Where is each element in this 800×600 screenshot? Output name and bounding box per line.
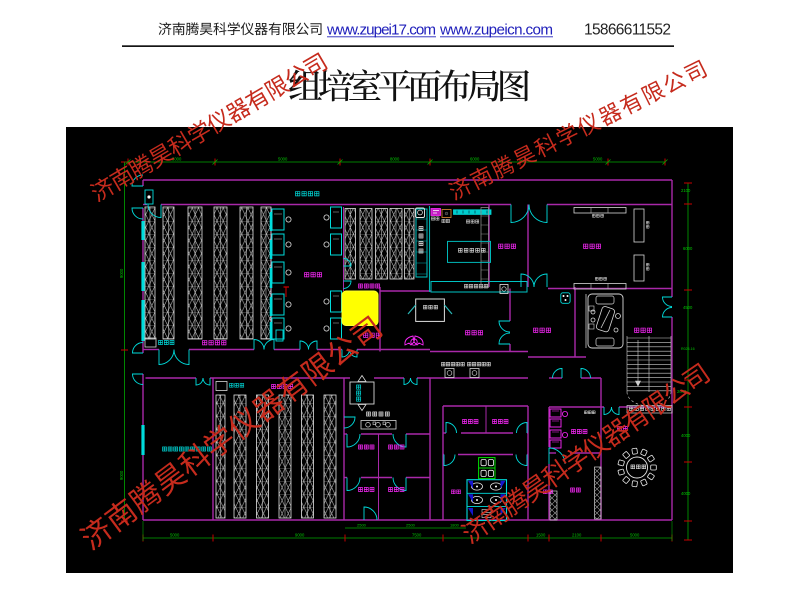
- svg-text:5000: 5000: [170, 533, 180, 538]
- svg-text:www.zupeicn.com: www.zupeicn.com: [439, 22, 553, 39]
- svg-text:6000: 6000: [470, 157, 480, 162]
- svg-text:2100: 2100: [681, 188, 691, 193]
- svg-text:R024.16: R024.16: [681, 347, 695, 351]
- svg-text:4000: 4000: [681, 433, 691, 438]
- svg-text:5000: 5000: [593, 157, 603, 162]
- svg-text:2500: 2500: [406, 523, 416, 528]
- svg-text:www.zupei17.com: www.zupei17.com: [326, 22, 436, 39]
- svg-text:2500: 2500: [357, 523, 367, 528]
- svg-text:5000: 5000: [278, 157, 288, 162]
- svg-text:9000: 9000: [119, 268, 124, 278]
- svg-text:15866611552: 15866611552: [584, 22, 671, 39]
- svg-text:1800: 1800: [450, 523, 460, 528]
- svg-text:4000: 4000: [681, 491, 691, 496]
- svg-text:8000: 8000: [390, 157, 400, 162]
- svg-text:6000: 6000: [683, 246, 693, 251]
- svg-text:7500: 7500: [412, 533, 422, 538]
- svg-text:9000: 9000: [119, 470, 124, 480]
- svg-text:1500: 1500: [536, 533, 546, 538]
- svg-text:5000: 5000: [630, 533, 640, 538]
- svg-text:4500: 4500: [683, 305, 693, 310]
- svg-text:2100: 2100: [572, 533, 582, 538]
- svg-text:9000: 9000: [295, 533, 305, 538]
